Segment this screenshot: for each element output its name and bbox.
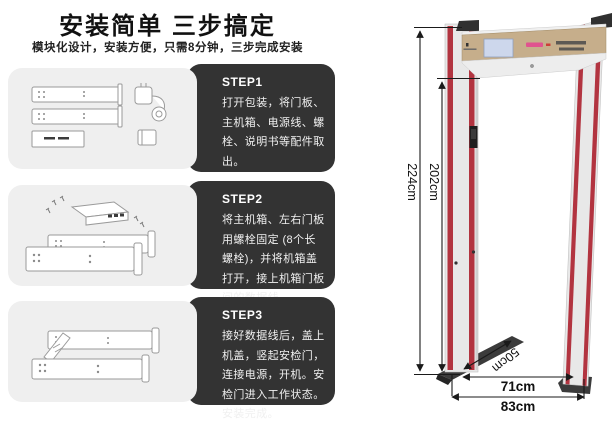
step-2-label: STEP2 (222, 192, 325, 206)
brand-logo (466, 43, 469, 47)
step-3-illustration (8, 301, 197, 402)
step-2-description: 将主机箱、左右门板用螺栓固定 (8个长螺栓)，并将机箱盖打开，接上机箱门板间的数… (222, 211, 326, 309)
cover-closing-sketch (8, 301, 197, 402)
step-3-panel: STEP3 接好数据线后，盖上机盖，竖起安检门，连接电源，开机。安检门进入工作状… (187, 297, 335, 405)
step-row-1: STEP1 打开包装，将门板、主机箱、电源线、螺栓、说明书等配件取出。 (0, 64, 335, 172)
step-2-panel: STEP2 将主机箱、左右门板用螺栓固定 (8个长螺栓)，并将机箱盖打开，接上机… (187, 181, 335, 289)
outer-height-label: 224cm (405, 163, 419, 201)
outer-width-label: 83cm (501, 399, 536, 414)
inner-height-label: 202cm (427, 163, 441, 201)
product-diagram: 224cm 202cm 71cm 83cm 50cm (400, 0, 615, 430)
step-1-description: 打开包装，将门板、主机箱、电源线、螺栓、说明书等配件取出。 (222, 94, 326, 172)
installation-guide: 安装简单 三步搞定 模块化设计，安装方便，只需8分钟，三步完成安装 STEP1 … (0, 0, 335, 430)
unpacking-parts-sketch (8, 68, 197, 169)
security-gate-figure: 224cm 202cm 71cm 83cm 50cm (400, 0, 615, 430)
step-3-label: STEP3 (222, 308, 325, 322)
left-column (445, 24, 478, 372)
step-3-description: 接好数据线后，盖上机盖，竖起安检门，连接电源，开机。安检门进入工作状态。安装完成… (222, 327, 326, 425)
step-1-label: STEP1 (222, 75, 325, 89)
page-title: 安装简单 三步搞定 (0, 6, 335, 41)
model-text-row (556, 41, 586, 45)
bolting-assembly-sketch (8, 185, 197, 286)
right-column (563, 19, 604, 386)
led-zone-display (526, 43, 543, 48)
step-1-panel: STEP1 打开包装，将门板、主机箱、电源线、螺栓、说明书等配件取出。 (187, 64, 335, 172)
step-row-2: STEP2 将主机箱、左右门板用螺栓固定 (8个长螺栓)，并将机箱盖打开，接上机… (0, 181, 335, 289)
page-subtitle: 模块化设计，安装方便，只需8分钟，三步完成安装 (0, 39, 335, 55)
screw (530, 64, 533, 67)
inner-width-label: 71cm (501, 379, 536, 394)
lcd-display (484, 39, 513, 57)
step-row-3: STEP3 接好数据线后，盖上机盖，竖起安检门，连接电源，开机。安检门进入工作状… (0, 297, 335, 405)
step-1-illustration (8, 68, 197, 169)
infographic-page: 安装简单 三步搞定 模块化设计，安装方便，只需8分钟，三步完成安装 STEP1 … (0, 0, 615, 430)
walkthrough-detector-illustration (436, 13, 612, 394)
left-top-cap (456, 20, 479, 31)
step-2-illustration (8, 185, 197, 286)
